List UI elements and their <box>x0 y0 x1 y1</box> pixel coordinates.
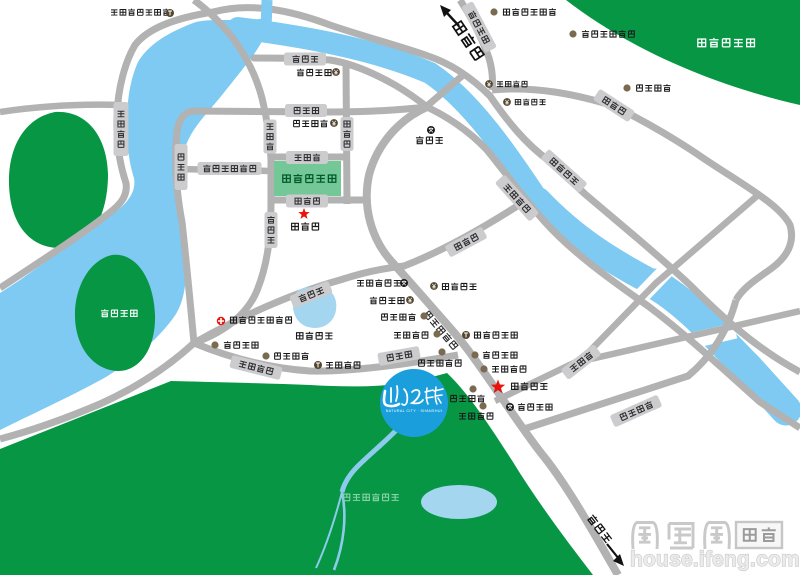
svg-text:house.ifeng.com: house.ifeng.com <box>630 548 800 571</box>
svg-text:NATURAL CITY · SHANSHUI: NATURAL CITY · SHANSHUI <box>386 409 442 413</box>
